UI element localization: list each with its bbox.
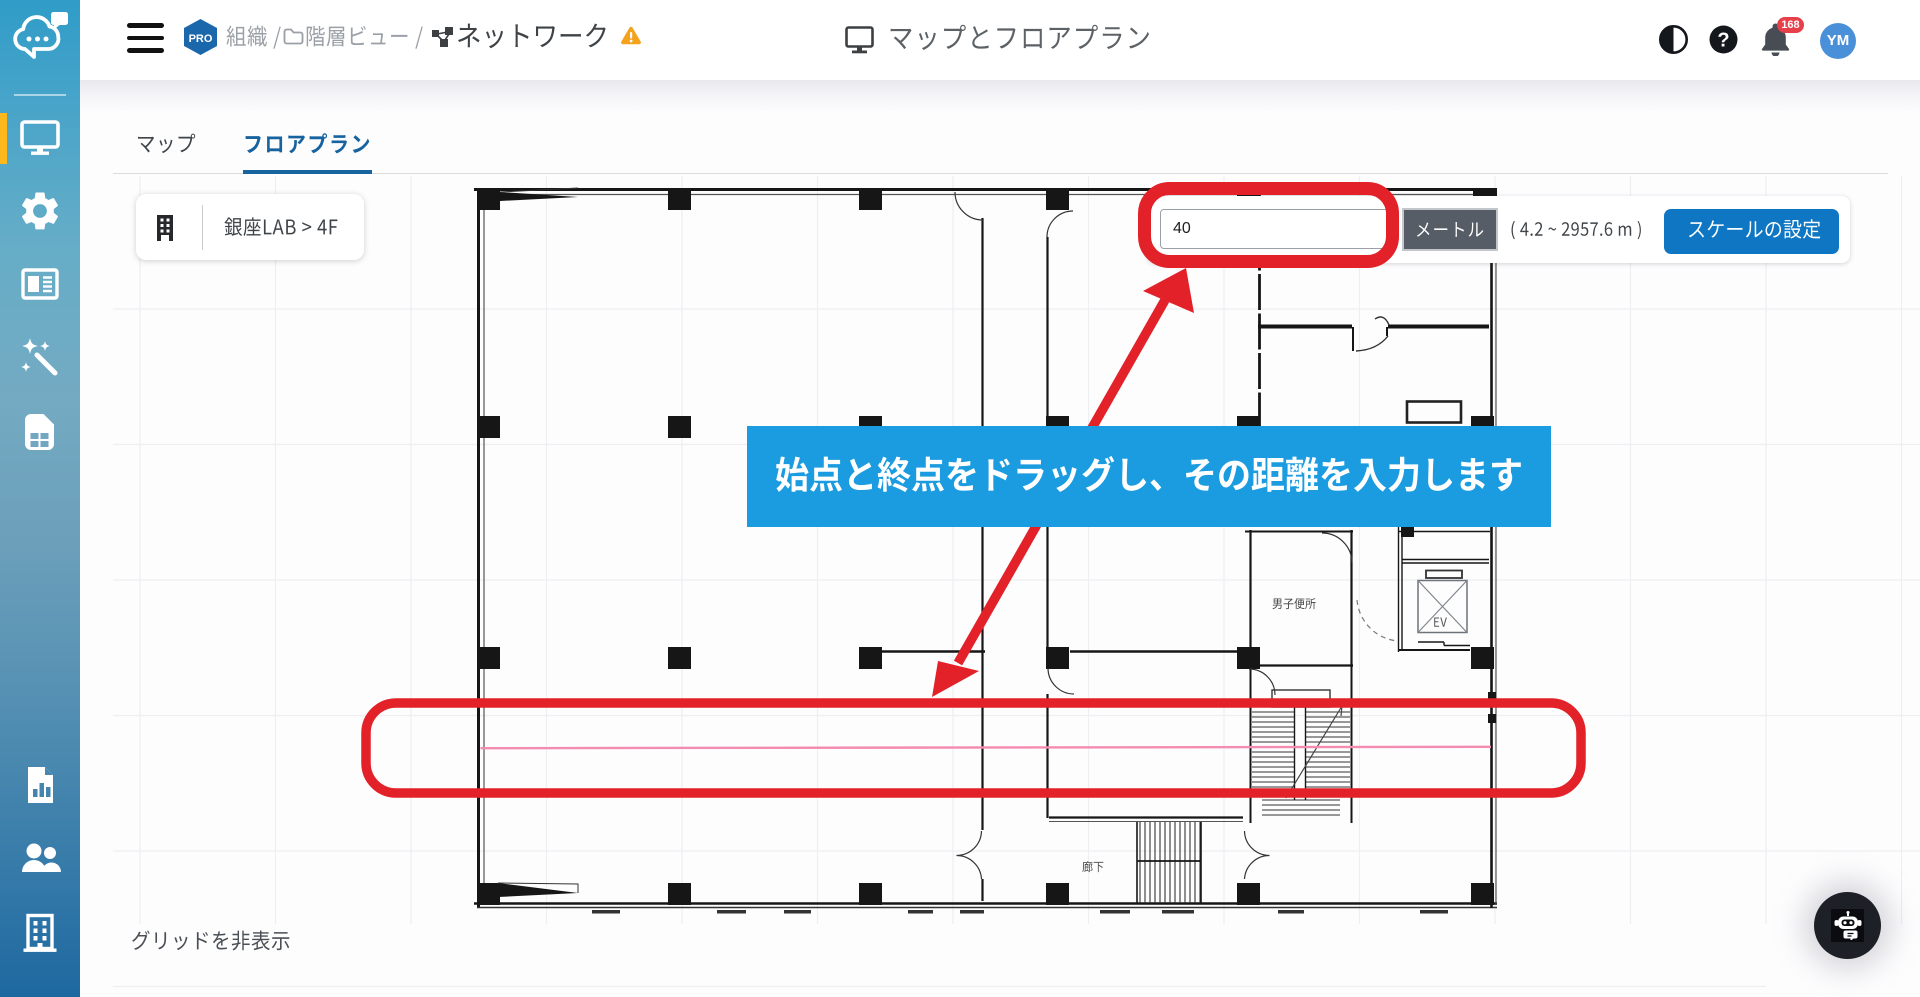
svg-text:PRO: PRO (189, 33, 213, 45)
svg-text:?: ? (1717, 30, 1729, 52)
